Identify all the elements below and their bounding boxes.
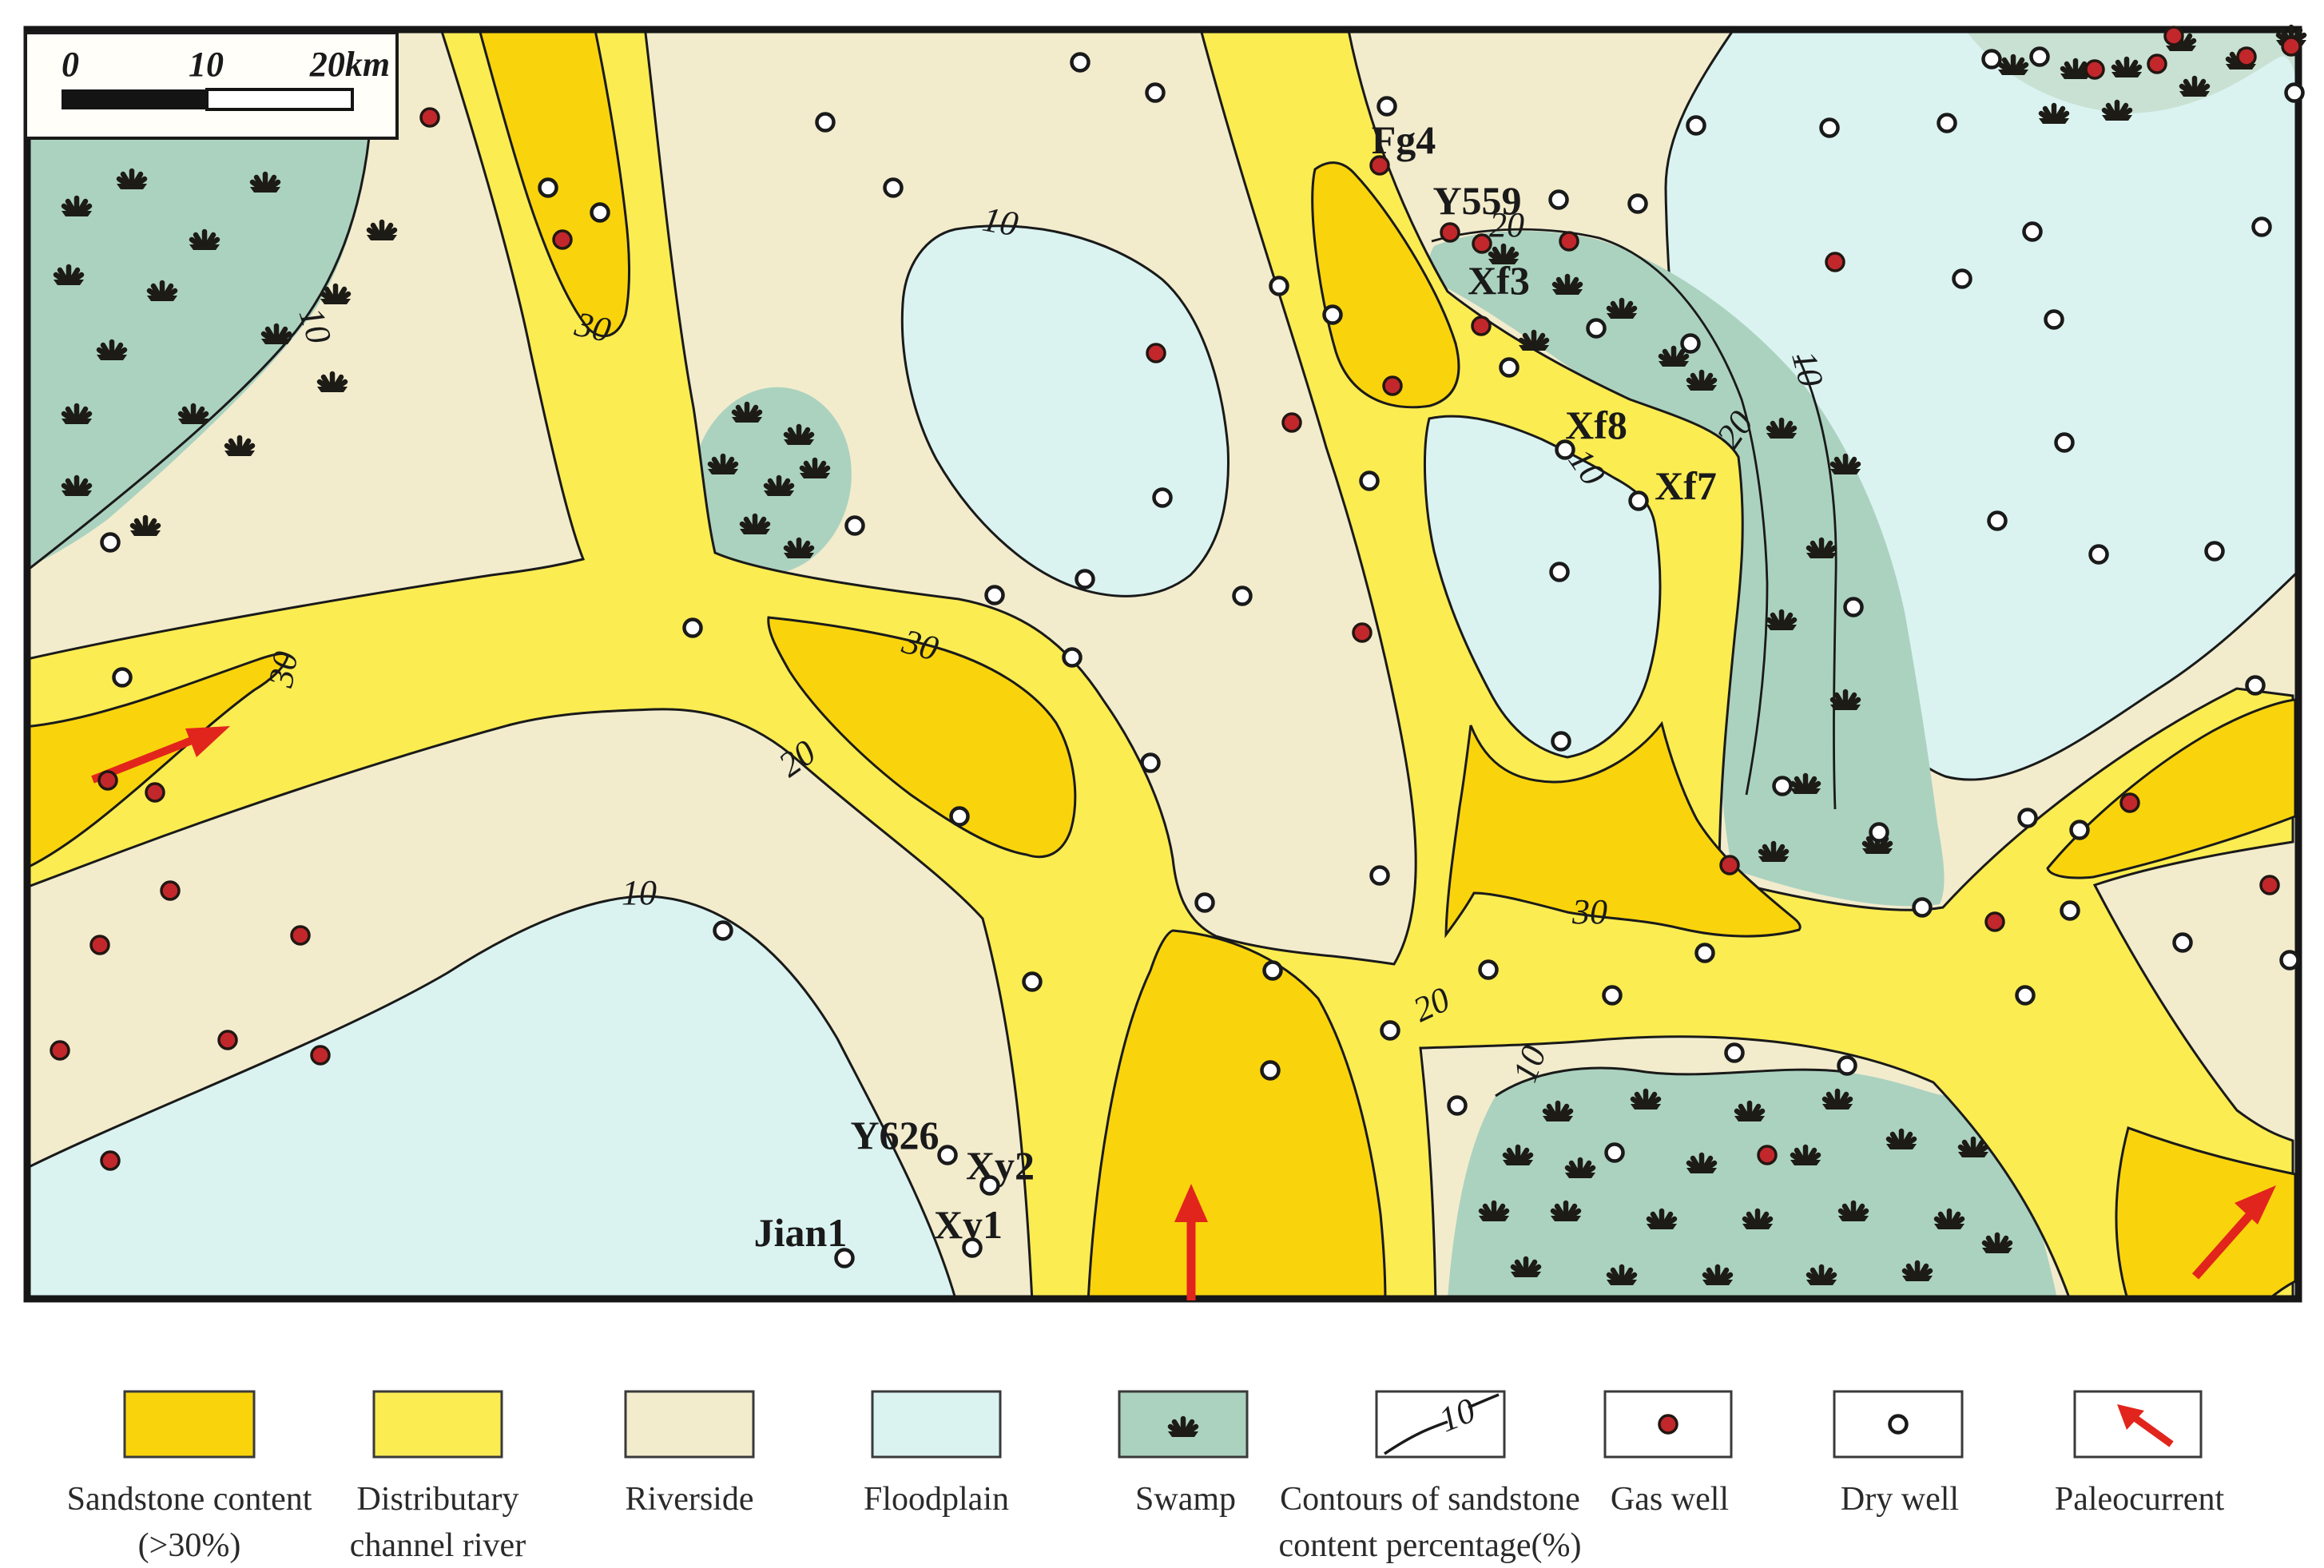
svg-text:Xy2: Xy2 <box>966 1143 1035 1188</box>
svg-text:Riverside: Riverside <box>626 1481 754 1518</box>
svg-text:10: 10 <box>622 873 657 912</box>
svg-text:30: 30 <box>1571 892 1607 931</box>
svg-text:0: 0 <box>62 45 79 84</box>
svg-text:10: 10 <box>189 45 224 84</box>
svg-text:30: 30 <box>260 649 305 691</box>
svg-text:Dry well: Dry well <box>1841 1481 1959 1518</box>
svg-text:Swamp: Swamp <box>1135 1481 1236 1518</box>
svg-text:Floodplain: Floodplain <box>864 1481 1009 1518</box>
svg-text:Y559: Y559 <box>1432 178 1521 223</box>
svg-text:channel river: channel river <box>350 1527 526 1564</box>
svg-text:20km: 20km <box>309 45 390 84</box>
svg-text:Gas well: Gas well <box>1611 1481 1729 1518</box>
svg-text:Y626: Y626 <box>850 1113 939 1157</box>
svg-text:Distributary: Distributary <box>357 1481 519 1518</box>
svg-text:10: 10 <box>979 200 1021 244</box>
svg-text:Xf3: Xf3 <box>1468 258 1530 303</box>
svg-text:content percentage(%): content percentage(%) <box>1279 1527 1582 1564</box>
svg-text:Sandstone content: Sandstone content <box>67 1481 312 1518</box>
svg-text:Contours of sandstone: Contours of sandstone <box>1280 1481 1580 1518</box>
svg-text:Jian1: Jian1 <box>754 1210 848 1255</box>
svg-text:(>30%): (>30%) <box>138 1527 241 1564</box>
svg-text:Xf8: Xf8 <box>1565 403 1627 447</box>
svg-text:Xf7: Xf7 <box>1655 463 1717 508</box>
svg-text:Paleocurrent: Paleocurrent <box>2055 1481 2225 1518</box>
